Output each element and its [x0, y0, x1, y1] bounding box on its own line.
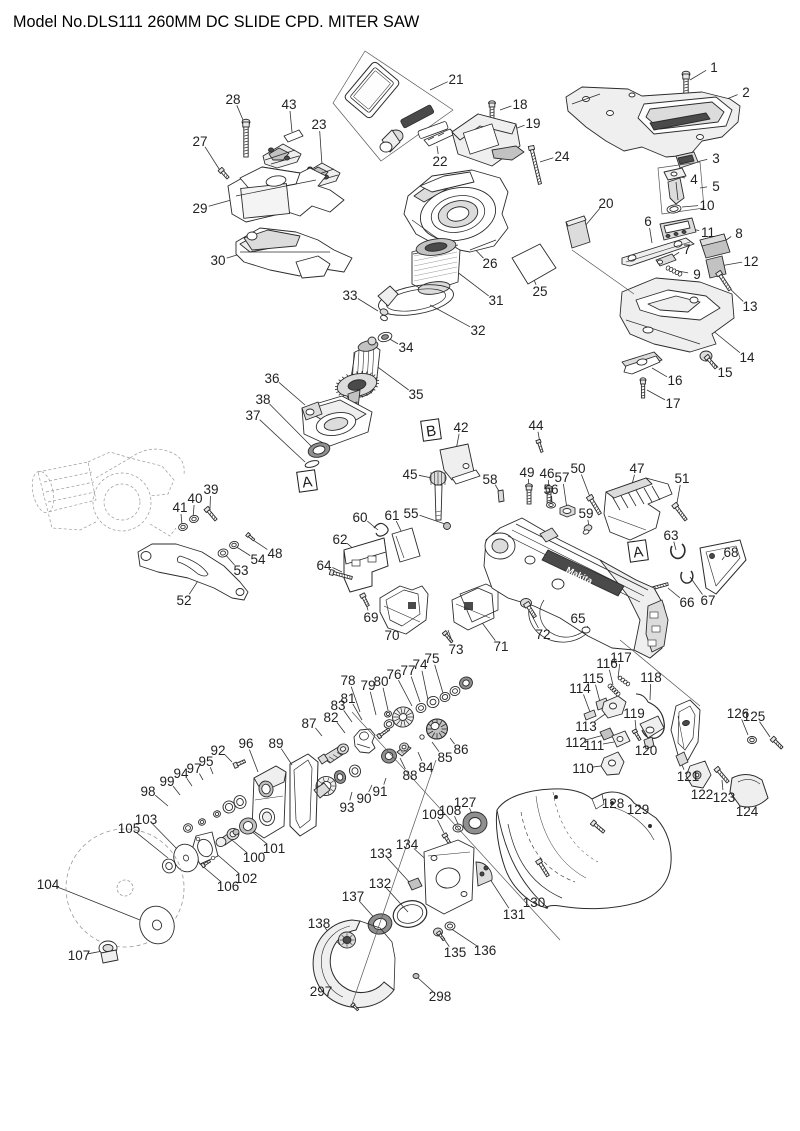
- svg-text:85: 85: [437, 750, 452, 765]
- svg-text:16: 16: [667, 373, 682, 388]
- svg-text:91: 91: [372, 784, 387, 799]
- svg-text:107: 107: [68, 948, 91, 963]
- svg-text:32: 32: [470, 323, 485, 338]
- svg-text:80: 80: [373, 674, 388, 689]
- svg-text:77: 77: [400, 663, 415, 678]
- svg-text:30: 30: [210, 253, 225, 268]
- svg-text:121: 121: [677, 769, 700, 784]
- svg-text:44: 44: [528, 418, 544, 433]
- svg-text:73: 73: [448, 642, 463, 657]
- svg-text:34: 34: [398, 340, 414, 355]
- svg-text:18: 18: [512, 97, 527, 112]
- svg-text:118: 118: [640, 670, 662, 685]
- svg-text:13: 13: [742, 299, 757, 314]
- svg-text:135: 135: [444, 945, 467, 960]
- svg-text:137: 137: [342, 889, 365, 904]
- svg-text:41: 41: [172, 500, 187, 515]
- svg-text:57: 57: [554, 470, 569, 485]
- svg-text:51: 51: [674, 471, 689, 486]
- svg-text:12: 12: [743, 254, 758, 269]
- svg-text:128: 128: [602, 796, 625, 811]
- svg-text:133: 133: [370, 846, 393, 861]
- svg-text:93: 93: [339, 800, 354, 815]
- svg-text:6: 6: [644, 214, 652, 229]
- svg-text:25: 25: [532, 284, 547, 299]
- svg-text:87: 87: [301, 716, 316, 731]
- svg-text:66: 66: [679, 595, 694, 610]
- svg-text:122: 122: [691, 787, 714, 802]
- svg-text:71: 71: [493, 639, 508, 654]
- svg-text:43: 43: [281, 97, 296, 112]
- svg-text:134: 134: [396, 837, 419, 852]
- svg-text:28: 28: [225, 92, 240, 107]
- svg-text:96: 96: [238, 736, 253, 751]
- svg-text:53: 53: [233, 563, 248, 578]
- svg-text:42: 42: [453, 420, 468, 435]
- svg-text:59: 59: [578, 506, 593, 521]
- svg-text:52: 52: [176, 593, 191, 608]
- svg-text:58: 58: [482, 472, 497, 487]
- svg-text:29: 29: [192, 201, 207, 216]
- svg-text:63: 63: [663, 528, 678, 543]
- svg-text:27: 27: [192, 134, 207, 149]
- svg-text:67: 67: [700, 593, 715, 608]
- svg-text:46: 46: [539, 466, 554, 481]
- svg-text:31: 31: [488, 293, 503, 308]
- svg-text:110: 110: [572, 761, 594, 776]
- svg-text:70: 70: [384, 628, 399, 643]
- svg-text:105: 105: [118, 821, 141, 836]
- svg-text:76: 76: [386, 667, 401, 682]
- svg-text:40: 40: [187, 491, 202, 506]
- svg-text:131: 131: [503, 907, 526, 922]
- svg-text:8: 8: [735, 226, 743, 241]
- svg-text:4: 4: [690, 172, 698, 187]
- svg-text:23: 23: [311, 117, 326, 132]
- svg-text:20: 20: [598, 196, 613, 211]
- svg-text:109: 109: [422, 807, 445, 822]
- svg-text:5: 5: [712, 179, 720, 194]
- svg-text:1: 1: [710, 60, 718, 75]
- svg-text:22: 22: [432, 154, 447, 169]
- svg-text:69: 69: [363, 610, 378, 625]
- svg-text:61: 61: [384, 508, 399, 523]
- svg-text:62: 62: [332, 532, 347, 547]
- svg-text:127: 127: [454, 795, 477, 810]
- svg-text:55: 55: [403, 506, 418, 521]
- svg-text:60: 60: [352, 510, 367, 525]
- svg-text:24: 24: [554, 149, 570, 164]
- svg-text:3: 3: [712, 151, 720, 166]
- svg-text:15: 15: [717, 365, 732, 380]
- svg-text:75: 75: [424, 651, 439, 666]
- svg-text:117: 117: [610, 650, 632, 665]
- svg-text:97: 97: [186, 761, 201, 776]
- svg-text:89: 89: [268, 736, 283, 751]
- svg-text:78: 78: [340, 673, 355, 688]
- svg-text:115: 115: [582, 671, 604, 686]
- svg-text:111: 111: [584, 738, 605, 753]
- svg-text:17: 17: [665, 396, 680, 411]
- svg-text:90: 90: [356, 791, 371, 806]
- svg-text:65: 65: [570, 611, 585, 626]
- svg-text:88: 88: [402, 768, 417, 783]
- svg-text:86: 86: [453, 742, 468, 757]
- svg-text:83: 83: [330, 698, 345, 713]
- svg-text:126: 126: [727, 706, 750, 721]
- svg-text:21: 21: [448, 72, 463, 87]
- svg-text:19: 19: [525, 116, 540, 131]
- svg-text:38: 38: [255, 392, 270, 407]
- svg-text:124: 124: [736, 804, 759, 819]
- svg-text:64: 64: [316, 558, 332, 573]
- svg-text:98: 98: [140, 784, 155, 799]
- svg-text:129: 129: [627, 802, 650, 817]
- svg-text:72: 72: [535, 627, 550, 642]
- svg-text:123: 123: [713, 790, 736, 805]
- svg-text:113: 113: [575, 719, 597, 734]
- svg-text:68: 68: [723, 545, 738, 560]
- svg-text:11: 11: [701, 225, 715, 240]
- svg-text:99: 99: [159, 774, 174, 789]
- svg-text:101: 101: [263, 841, 286, 856]
- svg-text:26: 26: [482, 256, 497, 271]
- svg-text:84: 84: [418, 760, 434, 775]
- svg-text:37: 37: [245, 408, 260, 423]
- svg-text:35: 35: [408, 387, 423, 402]
- svg-text:45: 45: [402, 467, 417, 482]
- svg-text:136: 136: [474, 943, 497, 958]
- svg-text:50: 50: [570, 461, 585, 476]
- svg-text:49: 49: [519, 465, 534, 480]
- svg-text:138: 138: [308, 916, 331, 931]
- svg-text:48: 48: [267, 546, 282, 561]
- svg-text:47: 47: [629, 461, 644, 476]
- svg-text:298: 298: [429, 989, 452, 1004]
- svg-text:7: 7: [683, 242, 691, 257]
- svg-text:120: 120: [635, 743, 658, 758]
- svg-text:14: 14: [739, 350, 755, 365]
- svg-text:36: 36: [264, 371, 279, 386]
- svg-text:112: 112: [565, 735, 587, 750]
- svg-text:132: 132: [369, 876, 392, 891]
- svg-text:106: 106: [217, 879, 240, 894]
- svg-text:9: 9: [693, 267, 701, 282]
- svg-text:104: 104: [37, 877, 60, 892]
- svg-text:54: 54: [250, 552, 266, 567]
- svg-text:39: 39: [203, 482, 218, 497]
- svg-text:130: 130: [523, 895, 546, 910]
- svg-text:297: 297: [310, 984, 333, 999]
- svg-text:2: 2: [742, 85, 750, 100]
- svg-text:10: 10: [699, 198, 714, 213]
- svg-text:33: 33: [342, 288, 357, 303]
- svg-text:119: 119: [623, 706, 645, 721]
